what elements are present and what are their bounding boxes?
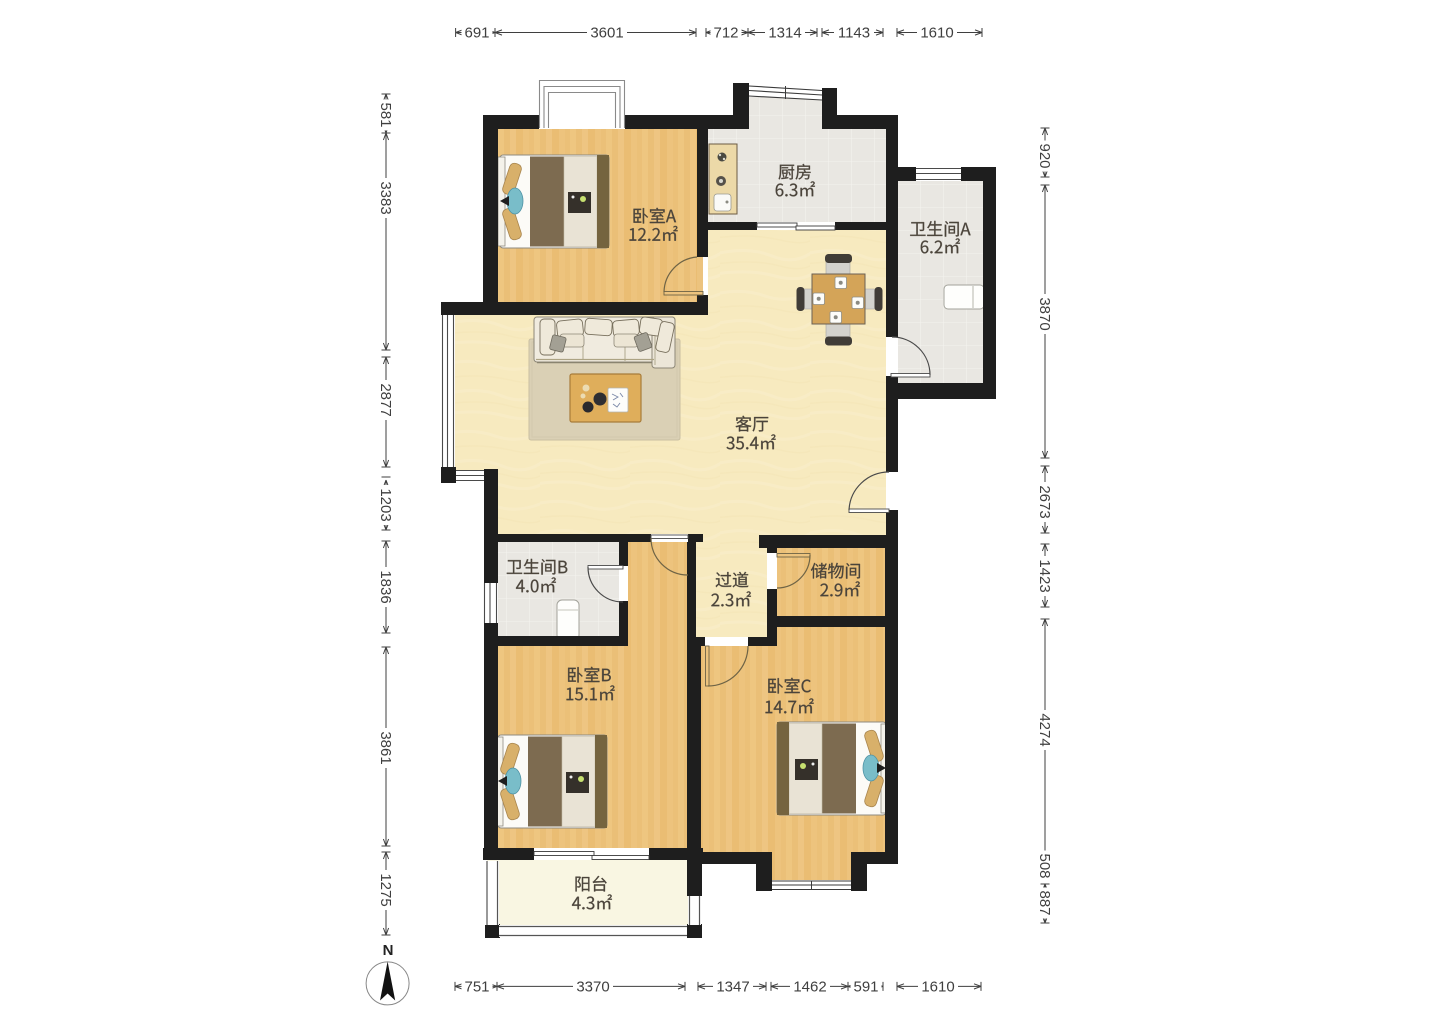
svg-text:581: 581 — [377, 102, 394, 127]
svg-text:751: 751 — [464, 978, 489, 995]
svg-text:691: 691 — [464, 25, 489, 42]
svg-text:3370: 3370 — [576, 978, 609, 995]
svg-text:1836: 1836 — [377, 570, 394, 603]
svg-text:920: 920 — [1036, 143, 1053, 168]
svg-text:1275: 1275 — [377, 873, 394, 906]
svg-text:1610: 1610 — [920, 25, 953, 42]
svg-text:1462: 1462 — [793, 978, 826, 995]
svg-text:2877: 2877 — [377, 383, 394, 416]
svg-text:1423: 1423 — [1036, 559, 1053, 592]
svg-text:1203: 1203 — [377, 488, 394, 521]
svg-text:591: 591 — [853, 978, 878, 995]
svg-text:508: 508 — [1036, 853, 1053, 878]
svg-text:1610: 1610 — [921, 978, 954, 995]
svg-text:3383: 3383 — [377, 181, 394, 214]
svg-text:3861: 3861 — [377, 731, 394, 764]
svg-text:3601: 3601 — [590, 25, 623, 42]
svg-text:4274: 4274 — [1036, 713, 1053, 746]
svg-text:1143: 1143 — [838, 25, 870, 42]
svg-text:712: 712 — [713, 25, 738, 42]
svg-text:1314: 1314 — [768, 25, 801, 42]
svg-text:887: 887 — [1036, 890, 1053, 915]
svg-text:2673: 2673 — [1036, 485, 1053, 518]
svg-text:1347: 1347 — [716, 978, 749, 995]
svg-text:N: N — [383, 942, 394, 959]
svg-text:3870: 3870 — [1036, 297, 1053, 330]
